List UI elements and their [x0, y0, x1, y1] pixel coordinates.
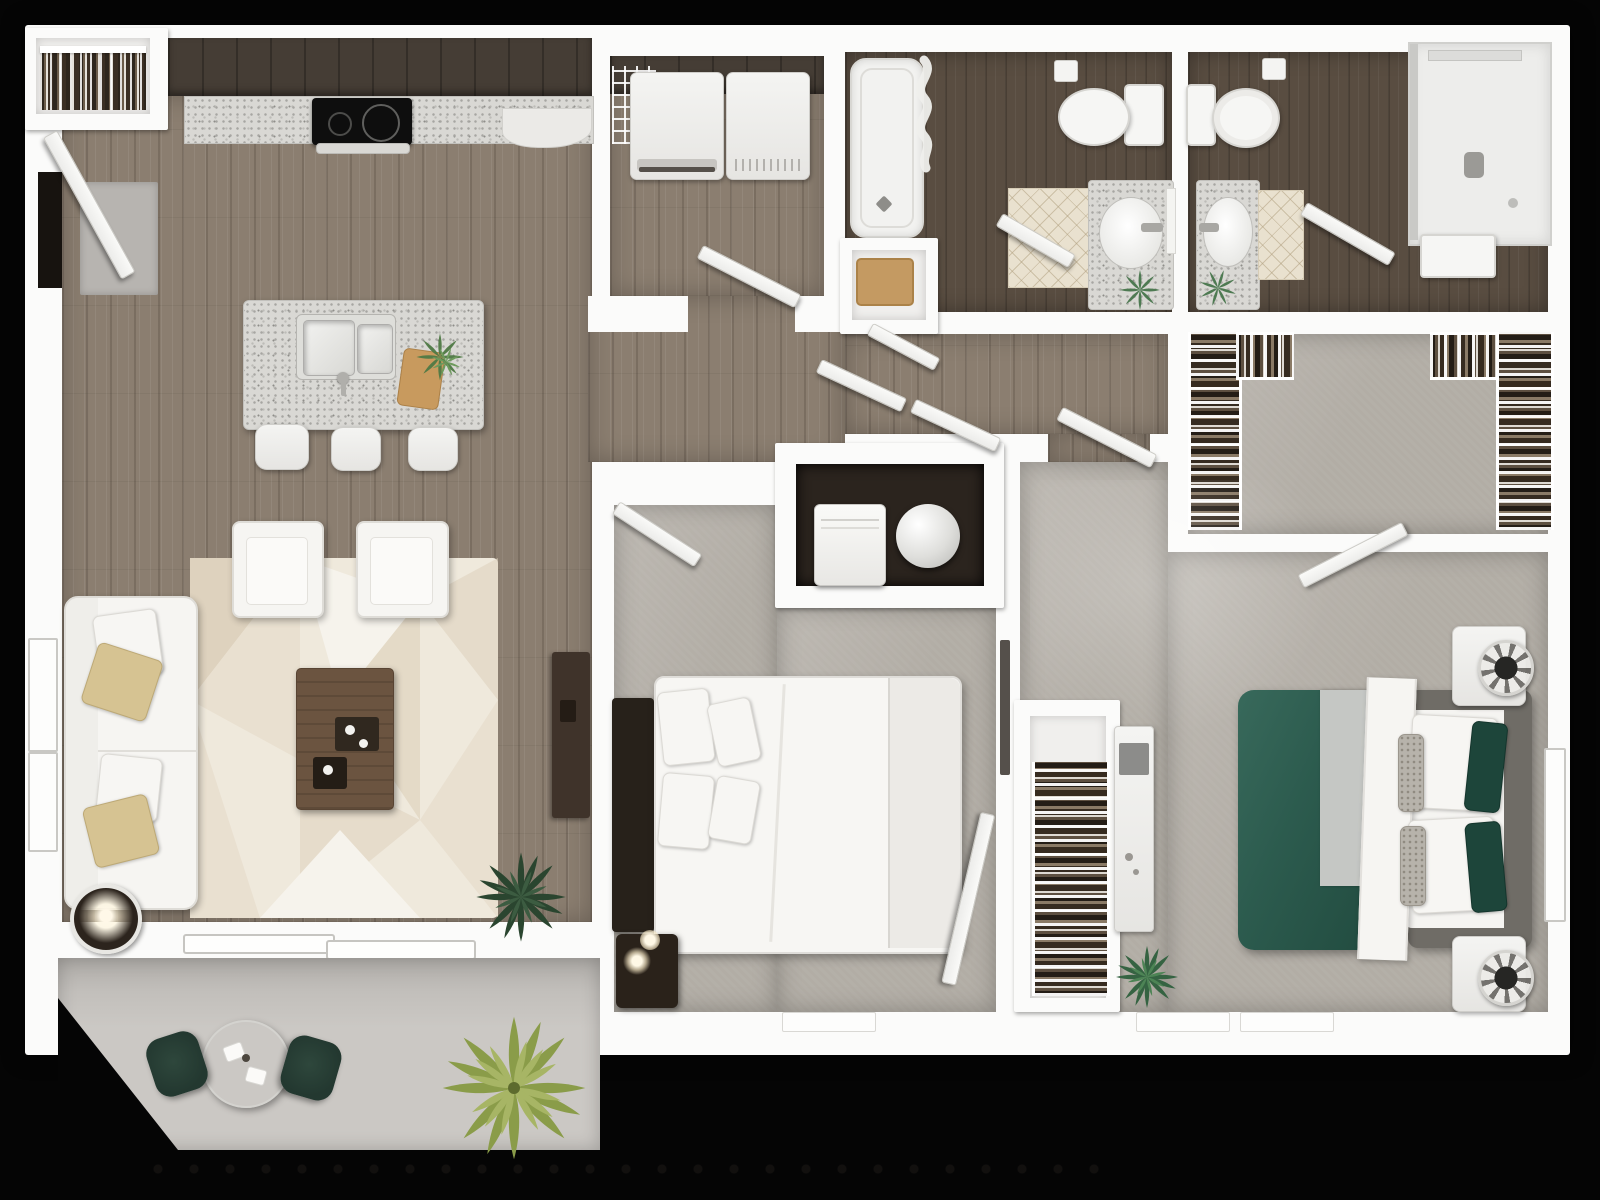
bath2-sink: [1203, 197, 1253, 267]
counter-curved-end: [502, 108, 592, 148]
bed1-pillow-2: [657, 772, 715, 850]
toilet2-bowl: [1212, 88, 1280, 148]
floor-plan-canvas: [0, 0, 1600, 1200]
walkin-rack-top-right: [1430, 332, 1496, 380]
bed1-headboard: [612, 698, 654, 932]
sofa-back: [66, 598, 98, 908]
kitchen-upper-cabinets: [168, 38, 592, 96]
side-table: [70, 884, 142, 954]
shower-bench: [1420, 234, 1496, 278]
bath-mat: [856, 258, 914, 306]
patio-plate-2: [244, 1066, 267, 1087]
coffee-table-mug-1: [345, 725, 355, 735]
bed2-window-right: [1544, 748, 1566, 922]
shower-drain: [1508, 198, 1518, 208]
bed2-dresser-decor-2: [1133, 869, 1139, 875]
bar-stool-2: [331, 427, 381, 471]
utility-closet-box: [775, 443, 1004, 608]
bed1-sheet-line: [769, 684, 785, 942]
dryer-vents: [735, 159, 801, 171]
toilet1-tank: [1124, 84, 1164, 146]
armchair-1-cushion: [246, 537, 308, 605]
bar-stool-1: [255, 424, 309, 470]
shower-glass-panel: [1410, 44, 1418, 240]
watermark-row: [140, 1158, 1120, 1184]
armchair-1: [232, 521, 324, 618]
bath1-vanity: [1088, 180, 1174, 310]
cutting-board: [396, 347, 446, 410]
bed1-pillow-1: [656, 687, 715, 766]
burner-large-icon: [362, 104, 400, 142]
window-left-1: [28, 638, 58, 752]
island-faucet-stem: [341, 380, 346, 396]
bed1-lamp-glow: [622, 946, 652, 976]
bath2-vanity: [1196, 180, 1260, 310]
entry-closet-wire-rack: [40, 52, 146, 110]
bed2-tv: [1119, 743, 1149, 775]
sink-basin-right: [357, 324, 393, 374]
sliding-door-pane-2: [326, 940, 476, 960]
washer-door-slot: [639, 167, 715, 172]
coffee-table-tray-1: [335, 717, 379, 751]
entry-closet-box: [25, 28, 168, 130]
bath1-mirror: [1166, 188, 1176, 254]
toilet1-bowl: [1058, 88, 1130, 146]
coffee-table-mug-2: [359, 739, 368, 748]
tv-console-item: [560, 700, 576, 722]
bed2-pillow-green-2: [1464, 821, 1508, 914]
washer: [630, 72, 724, 180]
sliding-door-pane-1: [183, 934, 335, 954]
bed2-window-sill-2: [1240, 1012, 1334, 1032]
bed2-door-open-flat: [1000, 640, 1010, 775]
bed2-fan-top: [1478, 640, 1534, 696]
water-heater-tank-sphere: [896, 504, 960, 568]
bath2-tile-floor: [1258, 190, 1304, 280]
bed1-window-sill: [782, 1012, 876, 1032]
armchair-2-cushion: [370, 537, 433, 605]
sink-basin-left: [303, 320, 355, 376]
tv-console: [552, 652, 590, 818]
bed2-pillow-damask-2: [1400, 826, 1426, 906]
entry-wall-recess: [38, 172, 62, 288]
coffee-table: [296, 668, 394, 810]
walk-in-shower: [1408, 42, 1552, 246]
bed2-window-sill-1: [1136, 1012, 1230, 1032]
burner-small-icon: [328, 112, 352, 136]
water-heater-lid-line: [821, 519, 879, 521]
bath1-faucet: [1141, 223, 1163, 232]
dryer: [726, 72, 810, 180]
bathtub: [850, 58, 924, 238]
coffee-table-mug-3: [323, 765, 333, 775]
shower-head: [1464, 152, 1484, 178]
bed2-fan-bottom: [1478, 950, 1534, 1006]
bath1-sink: [1099, 197, 1163, 269]
water-heater-lid-line2: [821, 527, 879, 529]
shower-top-bar: [1428, 50, 1522, 61]
walkin-rack-right: [1496, 332, 1554, 530]
bed1-closet-rack: [1032, 762, 1110, 996]
entry-closet-shelf: [40, 46, 146, 53]
window-left-2: [28, 752, 58, 852]
toilet1-paper-holder: [1054, 60, 1078, 82]
oven-handle: [316, 143, 410, 154]
linen-niche-box: [840, 238, 938, 334]
bed1-nightstand: [616, 934, 678, 1008]
bed1-closet-box: [1014, 700, 1120, 1012]
bed2-dresser-decor-1: [1125, 853, 1133, 861]
bed1-lamp-glow2: [640, 930, 660, 950]
walkin-rack-top-left: [1236, 332, 1294, 380]
sofa-seam: [98, 750, 196, 752]
bath2-faucet: [1199, 223, 1219, 232]
bed2-dresser: [1114, 726, 1154, 932]
armchair-2: [356, 521, 449, 618]
toilet2-paper-holder: [1262, 58, 1286, 80]
bed2-pillow-damask-1: [1398, 734, 1424, 812]
bed1-duvet-fold: [888, 678, 960, 948]
patio-cup: [242, 1054, 250, 1062]
water-heater-box: [814, 504, 886, 586]
bed2-white-fold: [1357, 677, 1417, 961]
bar-stool-3: [408, 427, 458, 471]
patio-table: [202, 1020, 290, 1108]
cooktop: [312, 98, 412, 145]
island-sink: [296, 314, 396, 380]
